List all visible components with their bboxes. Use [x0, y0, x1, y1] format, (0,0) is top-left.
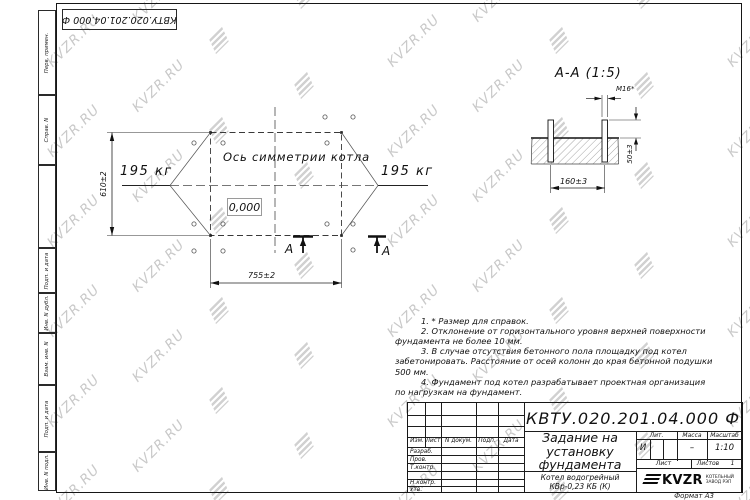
tb-doc-number: КВТУ.020.201.04.000 Ф: [524, 405, 742, 431]
tb-masshtab-label: Масштаб: [707, 432, 742, 439]
tb-masshtab-value: 1:10: [707, 443, 742, 453]
tb-lit-label: Лит.: [636, 432, 677, 439]
plan-dim-width: 755±2: [248, 271, 275, 280]
tb-massa-label: Масса: [677, 432, 707, 439]
tb-row-prov: Пров.: [410, 457, 427, 463]
tb-row-tkontr: Т.контр.: [410, 465, 435, 471]
notes-block: 1. * Размер для справок. 2. Отклонение о…: [395, 316, 717, 397]
section-thread-label: М16*: [616, 85, 634, 93]
manufacturer-logo: KVZR КОТЕЛЬНЫЙ ЗАВОД РЭП: [636, 468, 742, 492]
plan-section-letter-right: А: [382, 244, 390, 258]
plan-elevation-value: 0,000: [229, 201, 261, 214]
note-3: 3. В случае отсутствия бетонного пола пл…: [395, 346, 717, 376]
tb-massa-value: –: [677, 443, 707, 453]
format-note: Формат А3: [648, 492, 740, 500]
section-bolt-left: [548, 120, 554, 162]
anchor-holes: [192, 115, 355, 253]
tb-col-data: Дата: [498, 438, 524, 444]
note-1: 1. * Размер для справок.: [395, 316, 717, 326]
tb-doc-title: Задание на установку фундамента: [526, 432, 634, 471]
kvzr-caption-line2: ЗАВОД РЭП: [706, 480, 732, 485]
tb-list-label: Лист: [636, 460, 691, 467]
tb-product: Котел водогрейный КВр-0,23 КБ (К): [526, 472, 634, 491]
drawing-sheet: KVZR.RUKVZR.RUKVZR.RUKVZR.RUKVZR.RUKVZR.…: [0, 0, 750, 500]
tb-row-utv: Утв.: [410, 487, 422, 493]
plan-weight-right: 195 кг: [381, 164, 434, 179]
kvzr-logo-caption: КОТЕЛЬНЫЙ ЗАВОД РЭП: [706, 475, 734, 486]
tb-col-list: Лист: [425, 438, 441, 444]
note-4: 4. Фундамент под котел разрабатывает про…: [395, 377, 717, 397]
tb-lit-value: И: [636, 443, 650, 453]
kvzr-logo-icon: [642, 474, 662, 486]
plan-elevation-box: 0,000: [227, 198, 262, 216]
tb-row-razrab: Разраб.: [410, 449, 433, 455]
tb-col-izm: Изм.: [409, 438, 425, 444]
section-cut-marks: [293, 237, 386, 254]
kvzr-logo-text: KVZR: [662, 473, 703, 488]
plan-dim-height: 610±2: [97, 169, 109, 199]
plan-outline: [211, 133, 342, 236]
plan-axis-label: Ось симметрии котла: [223, 150, 370, 164]
section-title: А-А (1:5): [555, 66, 622, 81]
tb-listov-label: Листов: [691, 460, 725, 467]
tb-col-podp: Подп.: [476, 438, 498, 444]
tb-listov-value: 1: [725, 460, 740, 467]
plan-section-letter-left: А: [285, 242, 293, 256]
section-dim-protrusion: 50±3: [624, 142, 636, 166]
plan-weight-left: 195 кг: [120, 164, 173, 179]
title-block: Изм. Лист N докум. Подп. Дата Разраб. Пр…: [407, 402, 743, 493]
section-dim-spacing: 160±3: [560, 177, 587, 186]
kvzr-caption-line1: КОТЕЛЬНЫЙ: [706, 475, 734, 480]
tb-row-nkontr: Н.контр.: [410, 480, 436, 486]
section-bolt-right: [602, 120, 608, 162]
tb-col-docum: N докум.: [441, 438, 476, 444]
note-2: 2. Отклонение от горизонтального уровня …: [395, 326, 717, 346]
